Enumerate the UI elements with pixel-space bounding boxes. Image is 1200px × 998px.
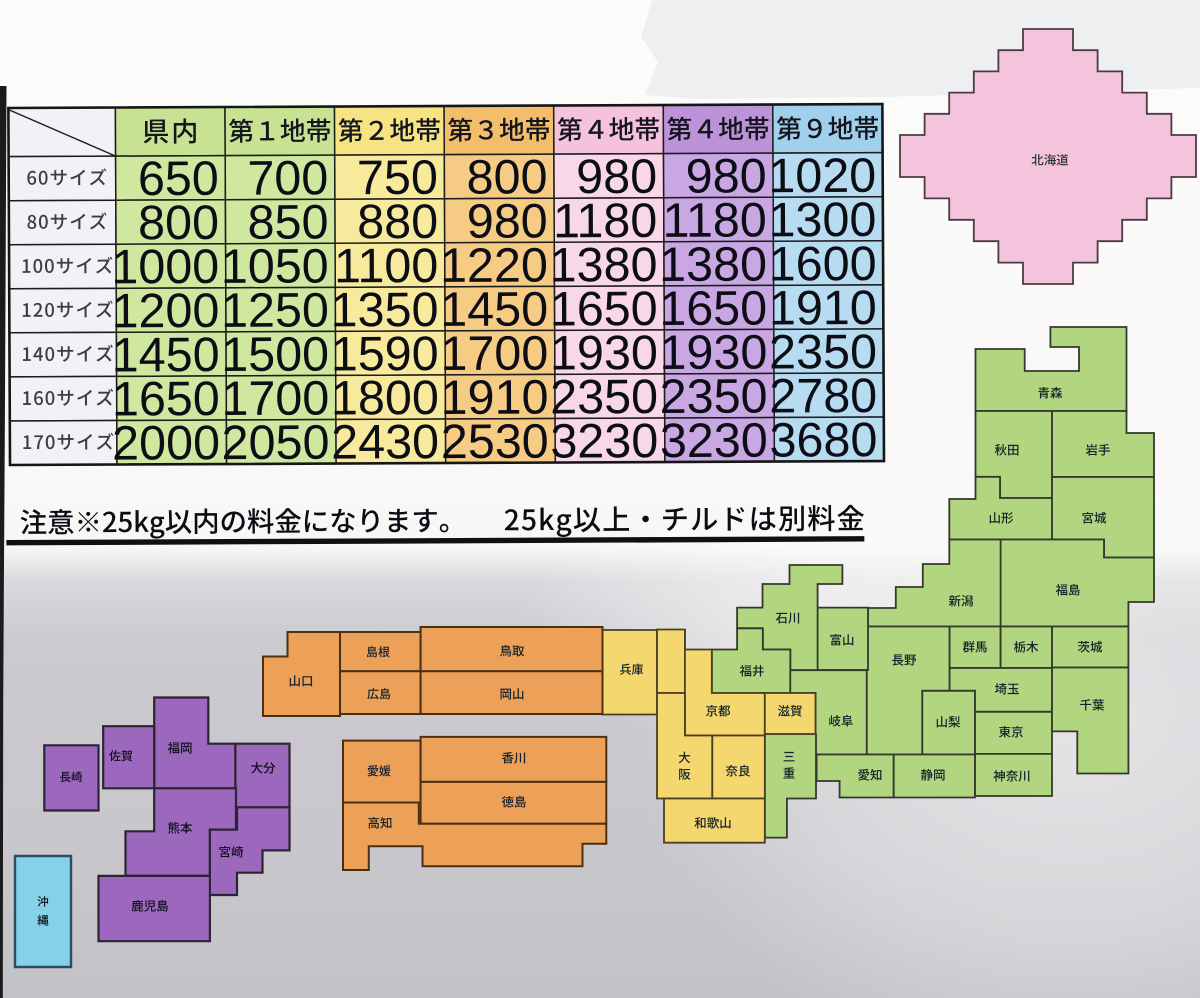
svg-text:3230: 3230 [550,414,658,468]
svg-text:2000: 2000 [112,416,220,470]
svg-text:3230: 3230 [660,414,768,468]
svg-text:3680: 3680 [769,413,877,467]
svg-text:2050: 2050 [221,416,329,470]
svg-text:2530: 2530 [441,415,549,469]
svg-text:2430: 2430 [331,415,439,469]
